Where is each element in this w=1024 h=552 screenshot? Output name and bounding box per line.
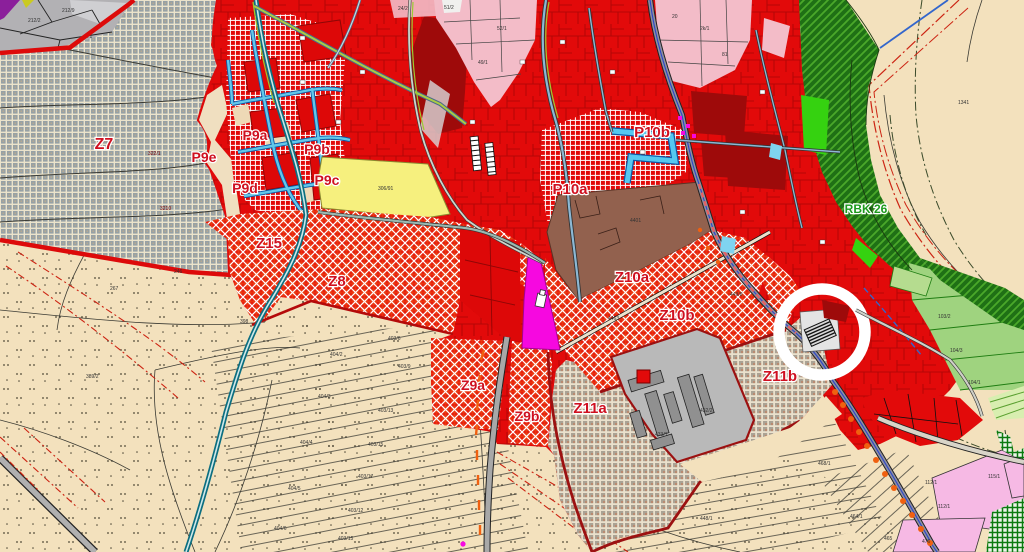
svg-text:2k/1: 2k/1	[700, 26, 710, 32]
svg-text:103/2: 103/2	[938, 314, 951, 320]
svg-text:448/1: 448/1	[700, 516, 713, 522]
svg-text:81: 81	[722, 52, 728, 58]
svg-text:403/12: 403/12	[348, 508, 364, 514]
svg-text:3210: 3210	[160, 206, 171, 212]
svg-text:246: 246	[174, 269, 183, 275]
svg-text:P9c: P9c	[315, 172, 340, 188]
svg-text:P10b: P10b	[634, 124, 670, 141]
svg-text:115/1: 115/1	[988, 474, 1000, 480]
svg-text:P9b: P9b	[304, 141, 330, 157]
svg-text:Z11b: Z11b	[763, 368, 797, 385]
svg-text:398: 398	[240, 319, 249, 325]
svg-text:Z9b: Z9b	[515, 408, 540, 424]
svg-text:464/1: 464/1	[850, 514, 863, 520]
svg-text:404/4: 404/4	[300, 440, 313, 446]
svg-text:212/9: 212/9	[62, 8, 75, 14]
svg-text:465: 465	[884, 536, 893, 542]
svg-text:404/6: 404/6	[274, 526, 287, 532]
svg-text:404/3: 404/3	[318, 394, 331, 400]
svg-text:P10a: P10a	[552, 181, 588, 198]
svg-text:433/1: 433/1	[655, 432, 668, 438]
svg-text:Z8: Z8	[328, 273, 346, 290]
svg-text:24/2: 24/2	[398, 6, 408, 12]
svg-text:212/2: 212/2	[28, 18, 41, 24]
svg-text:Z7: Z7	[95, 136, 114, 153]
svg-text:404/2: 404/2	[330, 352, 343, 358]
svg-text:51/2: 51/2	[444, 5, 454, 11]
svg-text:P9e: P9e	[192, 149, 217, 165]
svg-text:403/6: 403/6	[388, 336, 401, 342]
svg-text:306/91: 306/91	[378, 186, 394, 192]
svg-text:404/5: 404/5	[288, 486, 301, 492]
svg-text:403/13: 403/13	[378, 408, 394, 414]
svg-text:449/8: 449/8	[730, 292, 743, 298]
svg-text:432/2: 432/2	[700, 408, 713, 414]
svg-text:P9d: P9d	[232, 180, 258, 196]
svg-text:322/1: 322/1	[148, 151, 161, 157]
svg-text:403/17: 403/17	[358, 474, 374, 480]
svg-text:RBK 26: RBK 26	[845, 202, 888, 216]
svg-text:112/1: 112/1	[925, 480, 937, 486]
svg-text:52/1: 52/1	[497, 26, 507, 32]
svg-text:104/1: 104/1	[968, 380, 981, 386]
svg-text:112/1: 112/1	[938, 504, 950, 510]
svg-text:104/3: 104/3	[950, 348, 963, 354]
svg-text:Z15: Z15	[256, 235, 282, 252]
svg-text:403/15: 403/15	[368, 442, 384, 448]
svg-text:Z10a: Z10a	[615, 269, 650, 286]
svg-text:Z10b: Z10b	[659, 307, 694, 324]
svg-text:Z11a: Z11a	[573, 400, 607, 417]
svg-text:Z9a: Z9a	[461, 377, 485, 393]
svg-text:1341: 1341	[958, 100, 969, 106]
svg-text:20: 20	[672, 14, 678, 20]
svg-text:267: 267	[110, 286, 119, 292]
svg-text:468/1: 468/1	[818, 461, 831, 467]
svg-text:P9a: P9a	[243, 127, 268, 143]
svg-text:403/15: 403/15	[338, 536, 354, 542]
svg-text:49/1: 49/1	[478, 60, 488, 66]
svg-text:4463: 4463	[608, 316, 619, 322]
svg-text:403/9: 403/9	[398, 364, 411, 370]
svg-text:4401: 4401	[630, 218, 641, 224]
svg-text:476: 476	[922, 539, 931, 545]
svg-text:389/2: 389/2	[86, 374, 99, 380]
